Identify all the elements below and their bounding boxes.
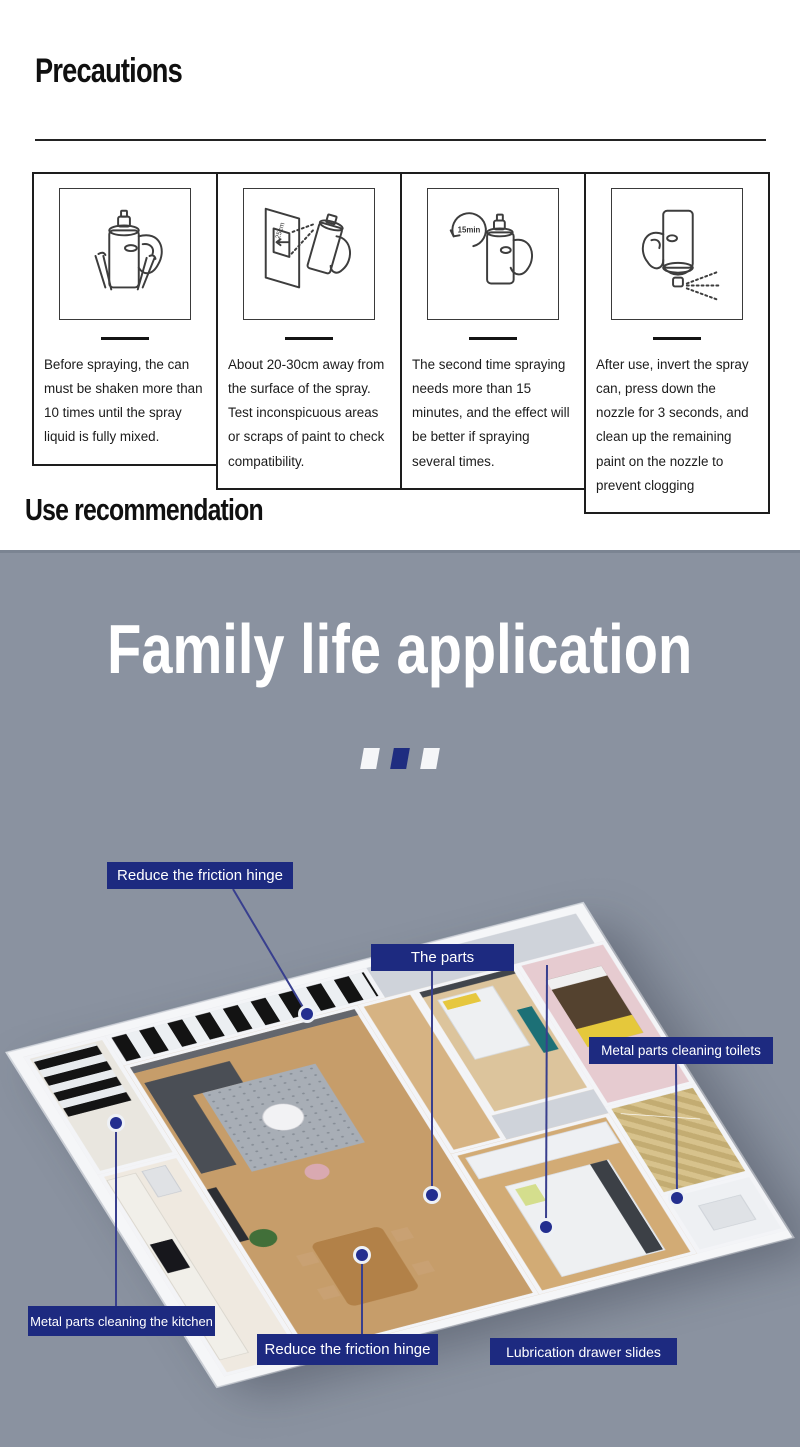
precaution-panel-invert: After use, invert the spray can, press d… [584, 172, 770, 514]
decor-square-navy [390, 748, 410, 769]
timer-label: 15min [458, 225, 481, 234]
panel-caption: About 20-30cm away from the surface of t… [228, 353, 390, 474]
callout-label-metal-parts-cleaning-toilets: Metal parts cleaning toilets [589, 1037, 773, 1064]
bed [437, 986, 530, 1060]
floor-hatch [698, 1194, 756, 1230]
wait-15min-icon: 15min [427, 188, 559, 320]
shake-spray-can-svg [66, 195, 184, 313]
use-recommendation-heading: Use recommendation [25, 492, 322, 528]
panel-divider [653, 337, 701, 340]
panel-caption: The second time spraying needs more than… [412, 353, 574, 474]
family-life-section: Family life application [0, 550, 800, 1447]
callout-label-metal-parts-cleaning-kitchen: Metal parts cleaning the kitchen [28, 1306, 215, 1336]
panel-divider [285, 337, 333, 340]
precautions-section: Precautions Before spraying, the can m [0, 0, 800, 550]
plant [245, 1226, 281, 1249]
family-title-text: Family life application [107, 609, 692, 689]
family-title: Family life application [0, 609, 800, 689]
precautions-heading: Precautions [35, 52, 219, 91]
armchair [301, 1161, 334, 1182]
callout-label-the-parts: The parts [371, 944, 514, 971]
panel-divider [469, 337, 517, 340]
floorplan-window [32, 1043, 131, 1117]
precaution-panels: Before spraying, the can must be shaken … [32, 172, 772, 514]
shower-glass [621, 1113, 701, 1119]
spray-distance-svg: 25cm [250, 195, 368, 313]
panel-caption: Before spraying, the can must be shaken … [44, 353, 206, 450]
dining-chair [412, 1260, 435, 1275]
decor-square-white [420, 748, 440, 769]
distance-label: 25cm [275, 221, 287, 239]
dining-chair [391, 1227, 414, 1242]
use-recommendation-heading-text: Use recommendation [25, 492, 263, 528]
spray-distance-icon: 25cm [243, 188, 375, 320]
precaution-panel-wait: 15min The second time spraying needs mor… [400, 172, 586, 490]
shake-spray-can-icon [59, 188, 191, 320]
panel-divider [101, 337, 149, 340]
decor-squares [0, 748, 800, 769]
invert-can-svg [618, 195, 736, 313]
callout-label-reduce-friction-hinge-top: Reduce the friction hinge [107, 862, 293, 889]
precaution-panel-shake: Before spraying, the can must be shaken … [32, 172, 218, 466]
panel-caption: After use, invert the spray can, press d… [596, 353, 758, 498]
decor-square-white [360, 748, 380, 769]
invert-can-icon [611, 188, 743, 320]
heading-divider-line [35, 139, 766, 141]
precautions-heading-text: Precautions [35, 52, 182, 91]
precaution-panel-distance: 25cm About 20-30cm away from the surface… [216, 172, 402, 490]
wait-15min-svg: 15min [434, 195, 552, 313]
callout-label-lubrication-drawer-slides: Lubrication drawer slides [490, 1338, 677, 1365]
callout-label-reduce-friction-hinge-bottom: Reduce the friction hinge [257, 1334, 438, 1365]
